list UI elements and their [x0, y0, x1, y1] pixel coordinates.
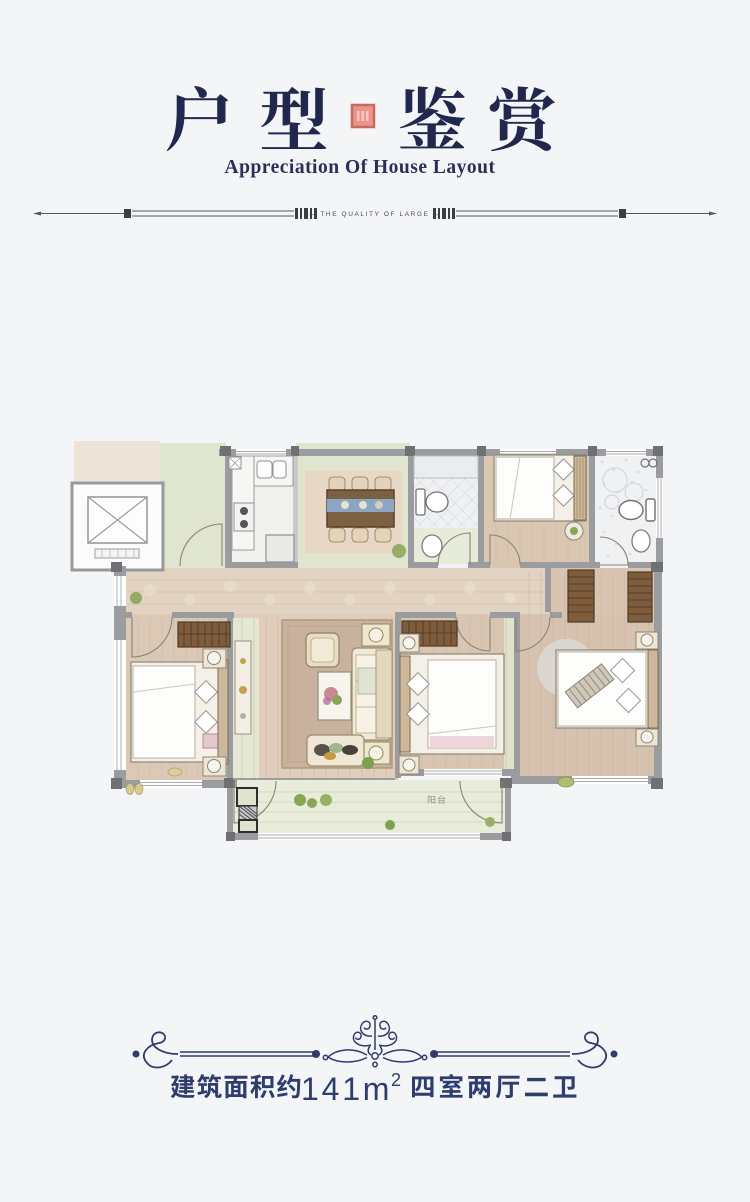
svg-text:2: 2	[391, 1070, 401, 1090]
svg-text:Appreciation Of House Layout: Appreciation Of House Layout	[225, 157, 496, 178]
svg-text:— THE QUALITY OF LARGE —: — THE QUALITY OF LARGE —	[309, 211, 441, 218]
svg-text:141m: 141m	[301, 1071, 392, 1107]
